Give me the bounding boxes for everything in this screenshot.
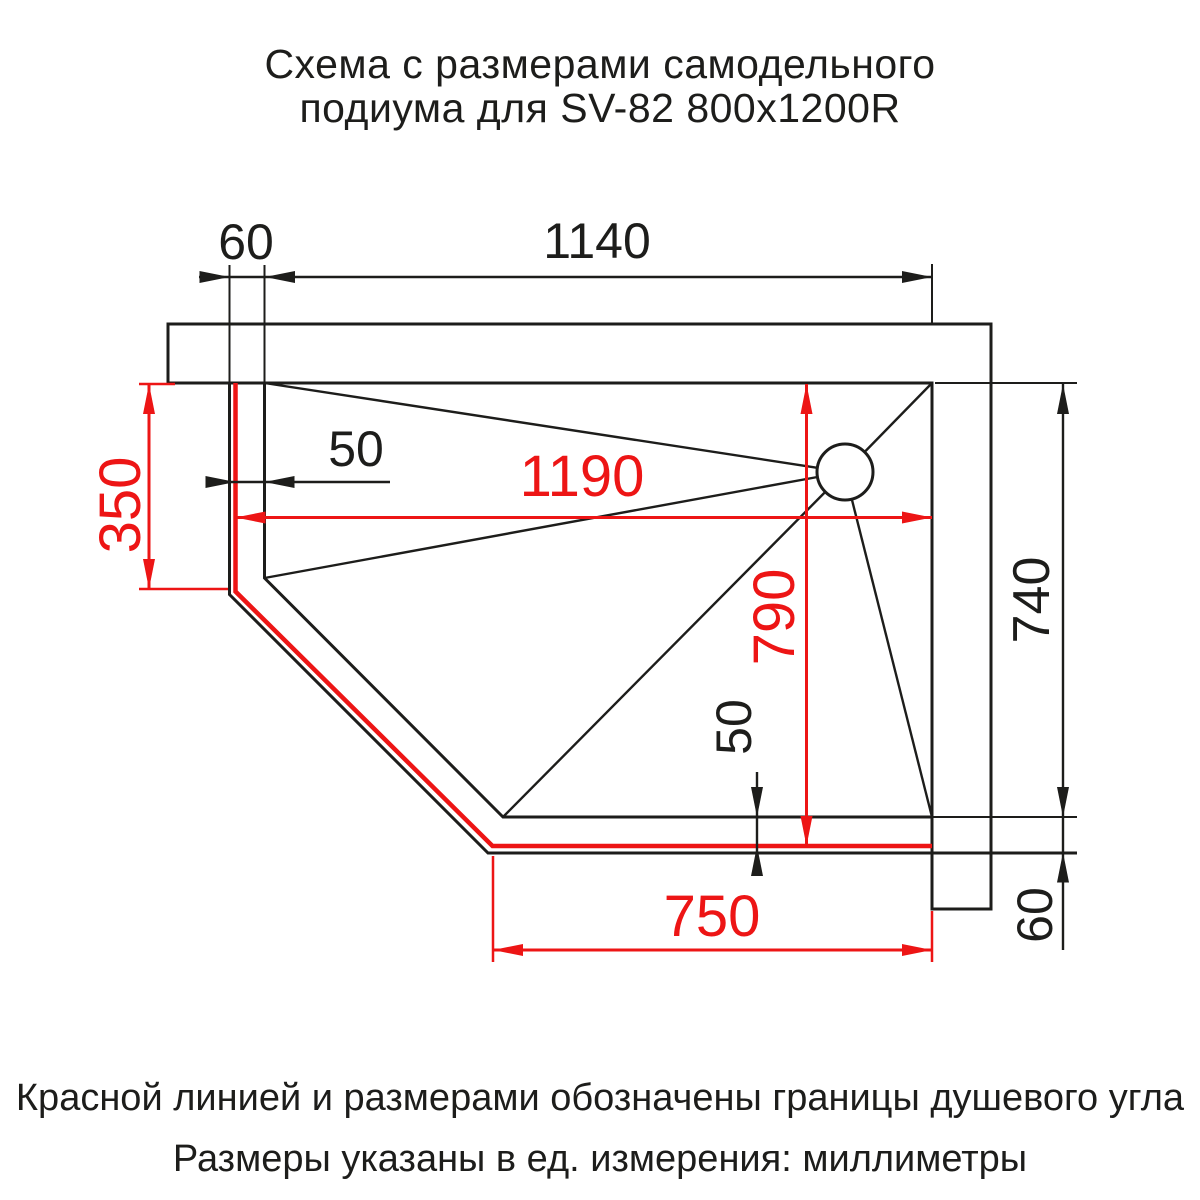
arrow-60br-bottom [1057,853,1069,883]
dimension-lines [149,277,1063,950]
podium-diagram: Схема с размерами самодельного подиума д… [0,0,1200,1200]
arrow-350-bottom [143,559,155,589]
arrow-350-top [143,384,155,414]
note-units: Размеры указаны в ед. измерения: миллиме… [173,1138,1027,1180]
arrow-750-right [902,944,932,956]
dim-label-350: 350 [88,457,153,554]
arrow-1140-right [902,271,932,283]
arrow-740-top [1057,384,1069,414]
arrow-790-bottom [801,816,813,846]
dim-label-790: 790 [742,569,807,666]
fold-line-top-right [865,383,932,452]
diagram-title-line2: подиума для SV-82 800x1200R [299,85,900,131]
fold-line-bottom-right [852,499,932,817]
dim-label-60-bottom-right: 60 [1007,887,1063,943]
dim-label-1140: 1140 [543,213,651,269]
arrow-1190-left [236,512,266,524]
dim-label-50-bottom: 50 [706,699,762,755]
dim-label-60-top: 60 [218,214,274,270]
arrow-790-top [801,384,813,414]
dim-label-740: 740 [1003,557,1061,644]
arrow-50bottom-b [751,846,763,876]
arrow-1190-right [902,512,932,524]
dim-label-1190: 1190 [520,444,645,509]
dim-label-50-left: 50 [328,421,384,477]
diagram-page: Схема с размерами самодельного подиума д… [0,0,1200,1200]
arrow-1140-left [265,271,295,283]
note-red-line: Красной линией и размерами обозначены гр… [16,1077,1185,1119]
extension-lines-black [230,264,1078,817]
arrow-60-left [200,271,230,283]
arrow-50bottom-a [751,787,763,817]
drain-circle [817,444,873,500]
arrow-750-left [493,944,523,956]
dim-label-750: 750 [664,884,761,949]
arrow-50left-b [265,476,295,488]
arrow-740-bottom [1057,787,1069,817]
diagram-title-line1: Схема с размерами самодельного [264,41,935,87]
wall-section [168,324,991,909]
wall-hatch-area [168,324,991,909]
